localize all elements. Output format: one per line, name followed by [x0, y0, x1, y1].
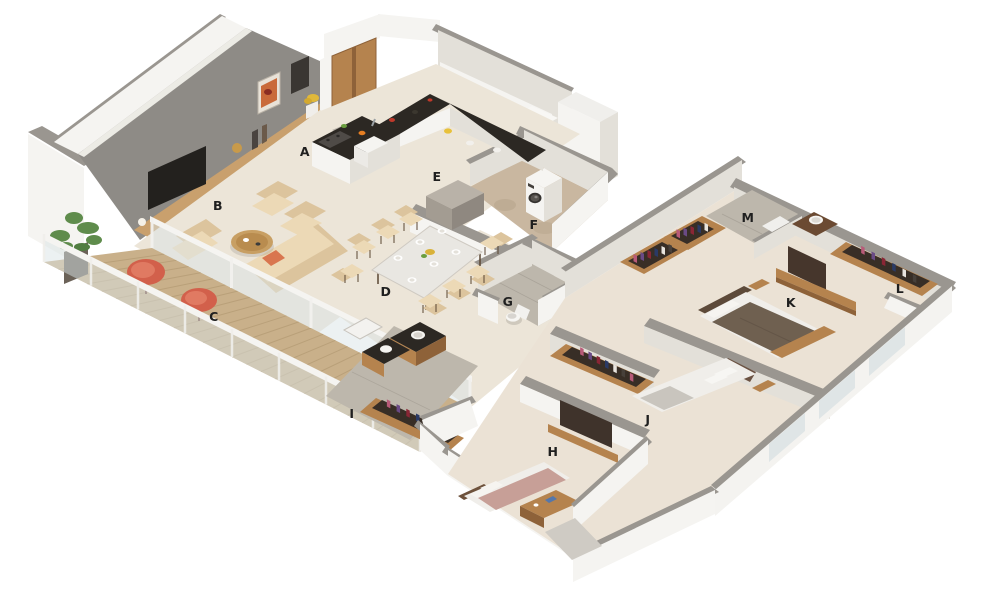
- food-dish: [341, 124, 347, 128]
- room-label-H: H: [548, 444, 559, 459]
- top-wall-band: [378, 14, 440, 42]
- food-dish: [359, 131, 366, 135]
- food-dish: [389, 118, 395, 122]
- floor-plan-render: ABCDEFGHIJKLM: [0, 0, 1000, 600]
- centerpiece: [425, 249, 435, 255]
- wash-basin: [380, 345, 392, 353]
- deco-statue: [262, 124, 267, 144]
- plate-inner: [431, 262, 436, 265]
- washing-machine-door-glass: [534, 196, 537, 199]
- coffee-table-inner: [236, 233, 268, 251]
- screenshot-root: ABCDEFGHIJKLM: [0, 0, 1000, 600]
- plate-inner: [417, 240, 422, 243]
- plate-inner: [395, 256, 400, 259]
- plate-inner: [439, 229, 444, 232]
- room-label-A: A: [300, 144, 310, 159]
- table-prop: [243, 238, 249, 242]
- flower-bouquet: [304, 98, 312, 104]
- toilet-seat: [508, 313, 517, 319]
- burner: [326, 139, 329, 141]
- plate-inner: [453, 250, 458, 253]
- room-label-I: I: [349, 406, 354, 421]
- utility-floor-mottle: [494, 199, 516, 211]
- burner: [336, 135, 339, 137]
- room-label-M: M: [742, 210, 755, 225]
- wall-deco-round: [232, 143, 242, 153]
- room-label-L: L: [896, 281, 904, 296]
- deco-statue: [252, 129, 258, 150]
- bath-m-sink-rim: [811, 217, 820, 223]
- bowl: [412, 110, 418, 114]
- plate-inner: [409, 278, 414, 281]
- food-dish: [444, 128, 452, 133]
- table-prop: [256, 242, 261, 245]
- wash-basin-rim: [413, 332, 422, 338]
- room-label-K: K: [786, 295, 797, 310]
- balcony-chair-cushion: [185, 291, 207, 305]
- room-label-F: F: [529, 217, 538, 232]
- plant-foliage: [65, 212, 83, 224]
- food-dish: [428, 98, 433, 101]
- table-lamp: [138, 218, 146, 226]
- balcony-chair-cushion: [131, 262, 155, 278]
- plant-foliage: [86, 235, 102, 245]
- room-label-E: E: [432, 169, 441, 184]
- picture-art-detail: [264, 89, 272, 95]
- plate: [493, 148, 501, 153]
- centerpiece-leaves: [421, 254, 427, 258]
- room-label-G: G: [503, 294, 514, 309]
- room-label-C: C: [209, 309, 219, 324]
- room-label-J: J: [644, 412, 650, 427]
- plant-foliage: [77, 222, 99, 234]
- room-label-B: B: [213, 198, 223, 213]
- desk-item: [534, 503, 539, 506]
- room-label-D: D: [381, 284, 392, 299]
- plate: [466, 141, 474, 146]
